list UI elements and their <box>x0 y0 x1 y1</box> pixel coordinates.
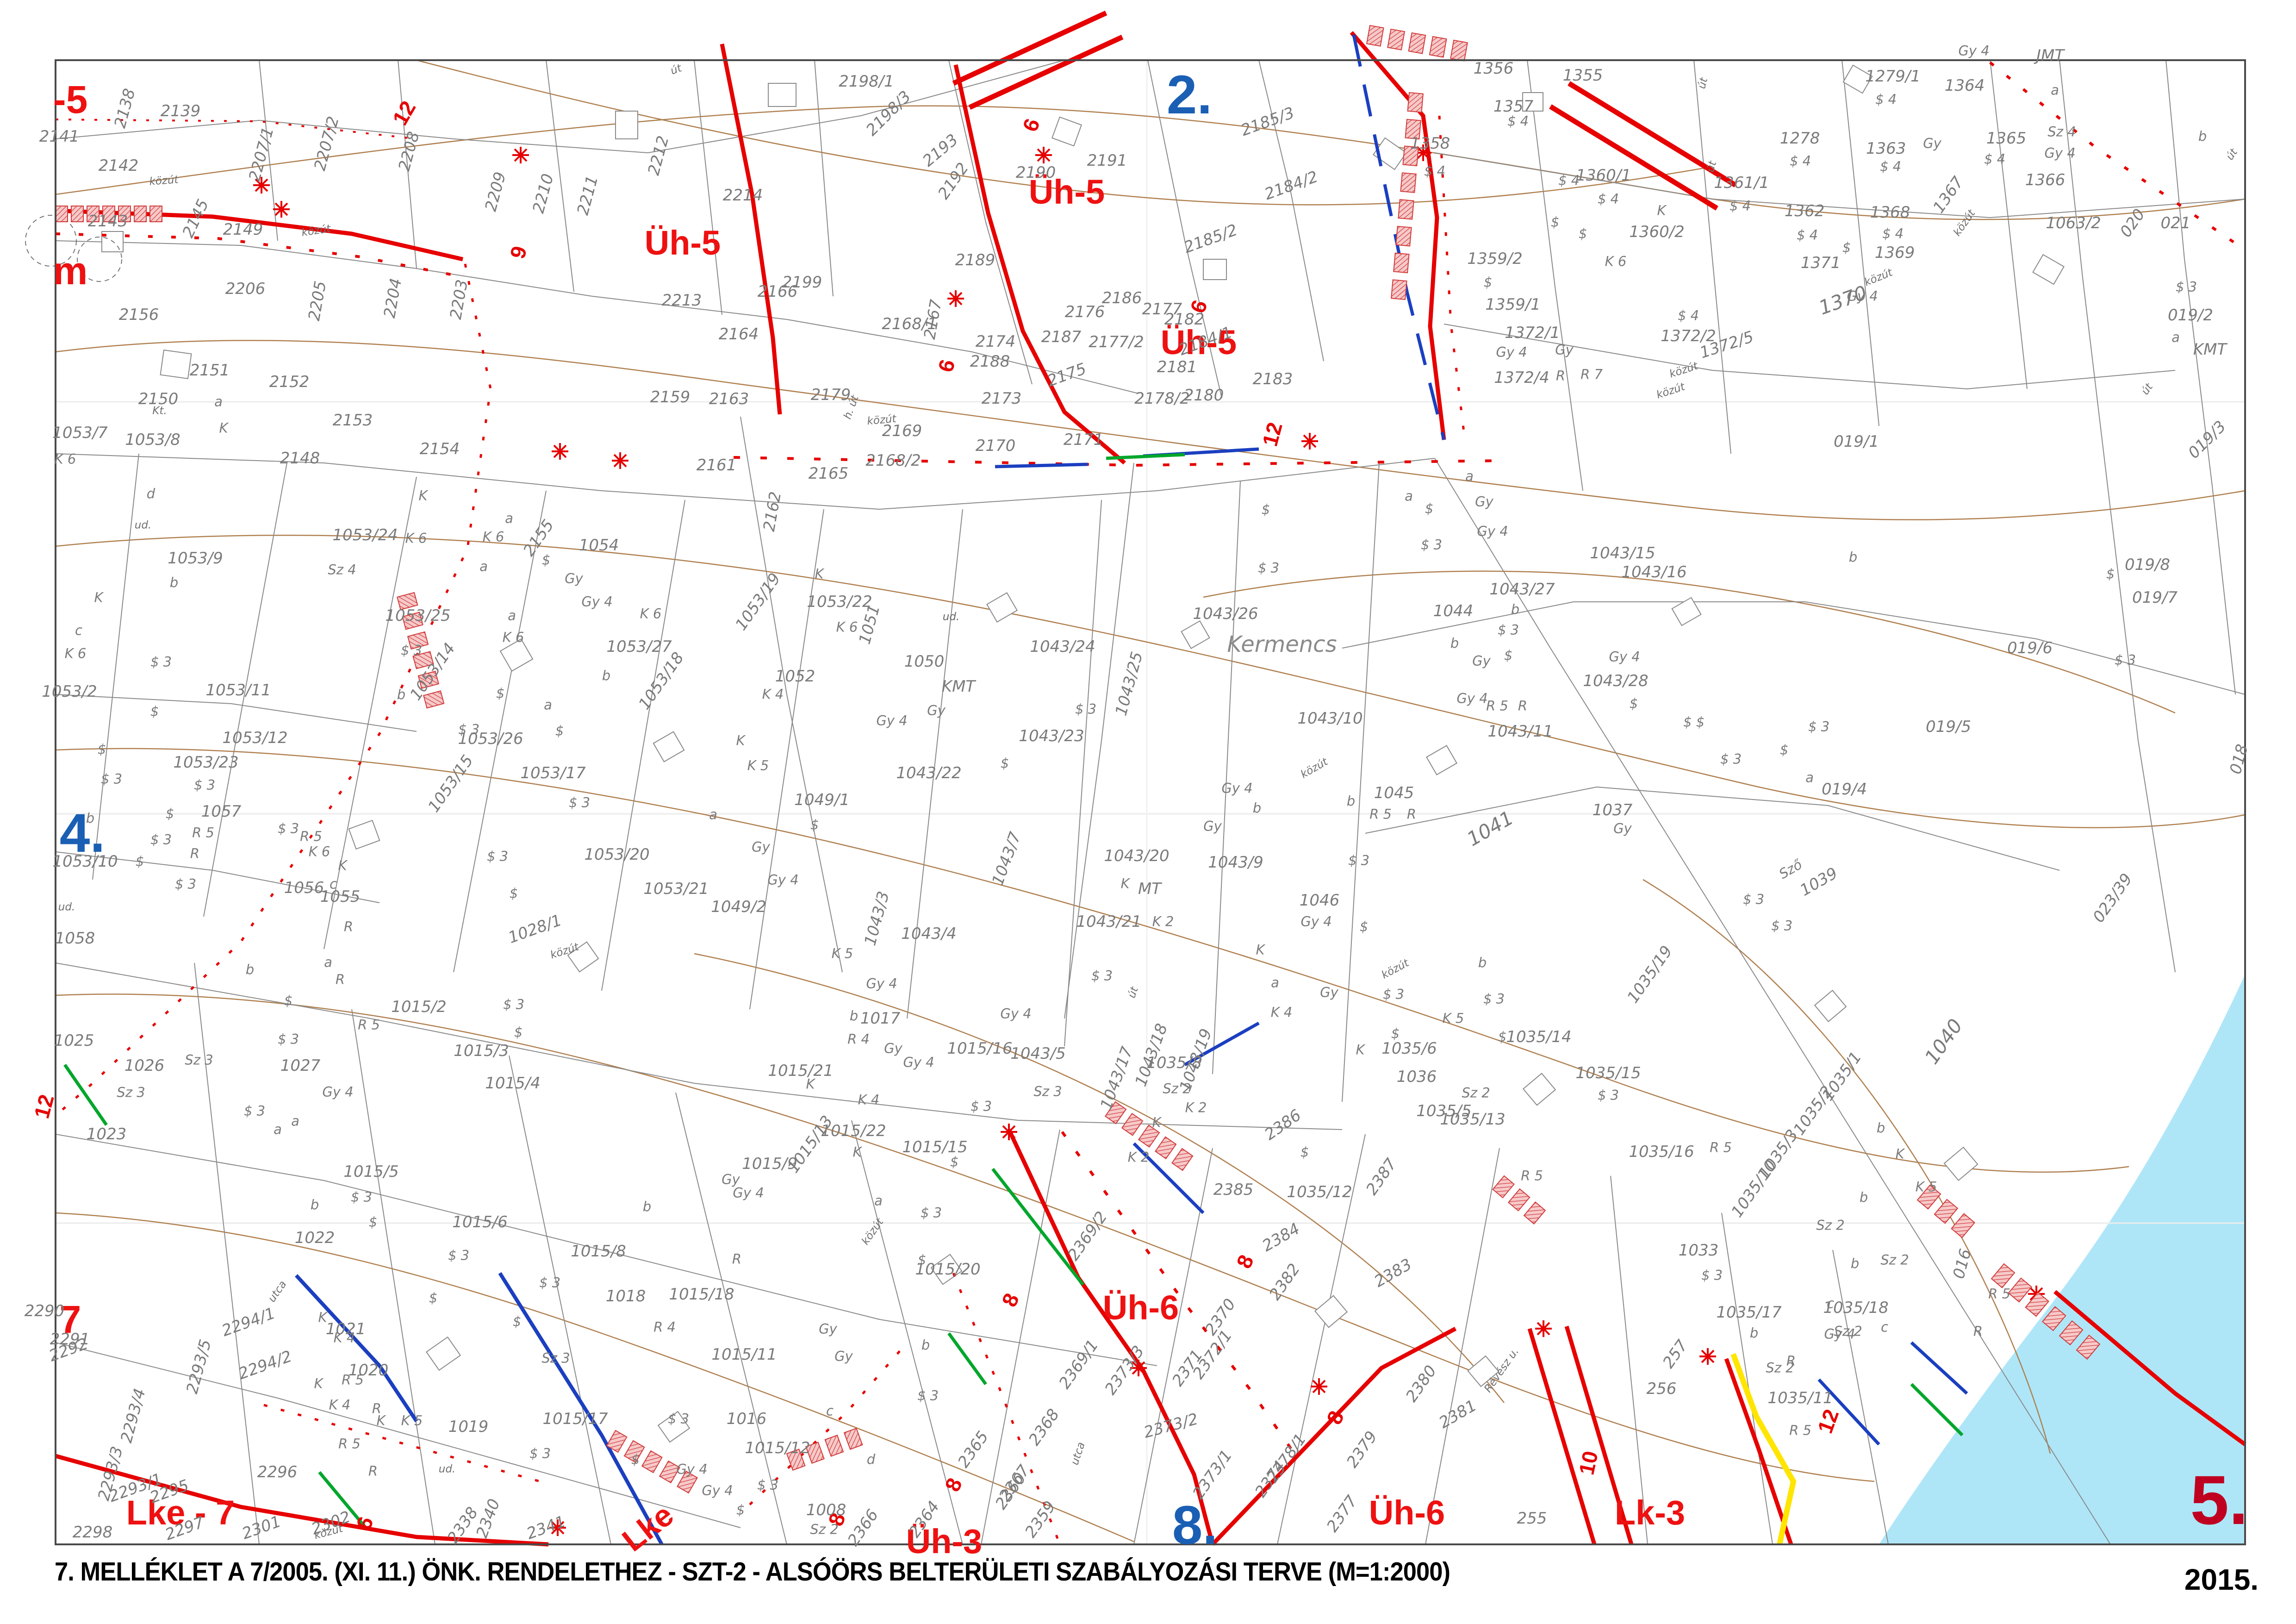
landuse-code: K <box>736 734 745 748</box>
landuse-code: $ <box>1300 1146 1309 1159</box>
parcel-number: 1053/26 <box>458 731 523 747</box>
landuse-code: $ <box>1360 920 1368 934</box>
landuse-code: Gy 4 <box>1609 650 1640 664</box>
landuse-code: $ 3 <box>917 1389 939 1403</box>
road-label: utca <box>267 1279 289 1304</box>
landuse-code: b <box>1347 795 1355 808</box>
landuse-code: $ <box>1262 503 1270 517</box>
parcel-number: 1028/1 <box>506 912 564 946</box>
parcel-number: 2181 <box>1157 359 1197 375</box>
landuse-code: K 5 <box>832 947 853 961</box>
landuse-code: $ <box>1425 502 1433 516</box>
landuse-code: K <box>1895 1148 1904 1161</box>
parcel-number: 2209 <box>483 170 508 213</box>
parcel-number: 2366 <box>845 1507 881 1549</box>
parcel-number: 2170 <box>976 438 1016 454</box>
landuse-code: Gy <box>1472 655 1491 668</box>
zone-label: Üh-6 <box>1103 1291 1179 1325</box>
landuse-code: b <box>1478 956 1487 970</box>
parcel-number: 1360/2 <box>1629 224 1685 240</box>
map-sheet: 2.4.8.5.2015.Üh-5Üh-5Üh-5Üh-6Üh-6Üh-3Lke… <box>0 0 2296 1624</box>
landuse-code: a <box>2051 84 2059 97</box>
parcel-number: 1015/17 <box>542 1411 608 1427</box>
parcel-number: 2138 <box>112 87 137 130</box>
parcel-number: 1053/10 <box>52 854 118 869</box>
dimension-label: 12 <box>31 1092 57 1120</box>
landuse-code: R 5 <box>342 1374 364 1387</box>
road-label: ud. <box>135 520 152 531</box>
zone-label: Lk-3 <box>1615 1496 1685 1530</box>
parcel-number: 2183 <box>1253 371 1293 387</box>
parcel-number: 2190 <box>1016 165 1056 181</box>
landuse-code: $ 3 <box>971 1100 992 1113</box>
parcel-number: 019/6 <box>2007 640 2053 656</box>
parcel-number: 1035/19 <box>1625 943 1675 1006</box>
dimension-label: 8 <box>941 1475 966 1495</box>
parcel-number: 1015/16 <box>947 1041 1012 1056</box>
parcel-number: 256 <box>1647 1381 1677 1397</box>
landuse-code: $ <box>150 705 159 718</box>
parcel-number: 021 <box>2161 215 2191 231</box>
dimension-label: 12 <box>1814 1406 1842 1436</box>
landuse-code: $ <box>631 1453 640 1467</box>
parcel-number: 2152 <box>269 374 310 390</box>
landuse-code: K 6 <box>640 607 662 621</box>
landuse-code: $ 3 <box>2176 281 2197 294</box>
parcel-number: 1371 <box>1801 255 1841 271</box>
parcel-number: 1037 <box>1593 802 1633 818</box>
road-label: út <box>1705 160 1718 174</box>
parcel-number: 1035/16 <box>1629 1144 1694 1160</box>
landuse-code: $ <box>136 855 144 868</box>
parcel-number: 1045 <box>1374 785 1414 801</box>
sheet-number: 8. <box>1172 1498 1218 1553</box>
landuse-code: b <box>602 669 610 683</box>
landuse-code: $ 4 <box>1882 227 1904 241</box>
parcel-number: 1015/21 <box>768 1063 833 1079</box>
parcel-number: 1053/7 <box>52 425 108 441</box>
parcel-number: 2166 <box>758 284 798 300</box>
landuse-code: a <box>324 956 332 969</box>
landuse-code: b <box>1511 603 1519 617</box>
landuse-code: K <box>418 489 427 503</box>
landuse-code: $ <box>513 1315 521 1329</box>
landuse-code: a <box>709 808 717 822</box>
landuse-code: $ 3 <box>921 1206 942 1220</box>
parcel-number: 1053/9 <box>168 550 223 566</box>
landuse-code: $ <box>166 807 174 821</box>
parcel-number: 1043/3 <box>862 890 892 947</box>
parcel-number: 2171 <box>1064 432 1104 448</box>
landuse-code: K 6 <box>483 531 504 544</box>
landuse-code: K <box>852 1146 861 1159</box>
parcel-number: 2188 <box>970 354 1010 369</box>
parcel-number: 2369/2 <box>1065 1209 1110 1263</box>
parcel-number: 020 <box>2117 206 2147 240</box>
parcel-number: 1365 <box>1986 131 2027 146</box>
parcel-number: 2384 <box>1260 1221 1302 1255</box>
landuse-code: Gy <box>884 1042 902 1056</box>
landuse-code: K <box>219 422 228 435</box>
year-label: 2015. <box>2184 1565 2259 1594</box>
landuse-code: Gy <box>1555 344 1574 357</box>
parcel-number: 1040 <box>1922 1016 1966 1068</box>
parcel-number: 2205 <box>306 280 329 322</box>
parcel-number: 1035/14 <box>1506 1029 1571 1045</box>
landuse-code: $ <box>1504 649 1512 662</box>
dimension-label: 8 <box>1323 1408 1348 1428</box>
parcel-number: 1035/10 <box>1729 1157 1780 1220</box>
parcel-number: 1372/4 <box>1494 370 1549 386</box>
landuse-code: $ 3 <box>1421 538 1442 552</box>
landuse-code: $ 3 <box>1348 854 1369 868</box>
landuse-code: Gy 4 <box>866 977 897 991</box>
landuse-code: $ <box>1498 1031 1506 1044</box>
parcel-number: 1026 <box>124 1058 165 1074</box>
parcel-number: 1035/17 <box>1716 1305 1781 1320</box>
landuse-code: K 4 <box>329 1399 351 1412</box>
parcel-number: 2293/5 <box>184 1338 214 1395</box>
landuse-code: $ 3 <box>278 1033 299 1046</box>
parcel-number: 1043/26 <box>1193 606 1258 622</box>
parcel-number: 1361/1 <box>1714 175 1769 191</box>
landuse-code: $ <box>284 994 292 1008</box>
road-label: ud. <box>943 612 960 623</box>
parcel-number: 1035/6 <box>1381 1041 1437 1056</box>
landuse-code: Gy 4 <box>676 1463 707 1476</box>
landuse-code: $ <box>555 725 564 738</box>
landuse-code: b <box>850 1010 858 1023</box>
parcel-number: 2191 <box>1087 153 1127 169</box>
landuse-code: R 5 <box>1521 1169 1543 1183</box>
zone-label-clipped: -5 <box>53 80 88 119</box>
parcel-number: 2385 <box>1213 1182 1254 1198</box>
landuse-code: $ <box>369 1216 377 1229</box>
landuse-code: K 5 <box>1916 1181 1937 1194</box>
landuse-code: $ 3 <box>2115 654 2136 667</box>
landuse-code: $ <box>950 1156 958 1169</box>
landuse-code: Gy <box>1613 822 1632 836</box>
parcel-number: 1053/15 <box>426 752 476 815</box>
road-label: út <box>1126 986 1140 999</box>
landuse-code: a <box>1405 490 1413 503</box>
parcel-number: 2380 <box>1403 1363 1439 1405</box>
parcel-number: KMT <box>942 679 975 694</box>
landuse-code: Gy <box>1475 495 1493 509</box>
parcel-number: 1053/19 <box>733 570 784 633</box>
landuse-code: K <box>1356 1043 1364 1057</box>
parcel-number: 2373/3 <box>1102 1343 1147 1397</box>
parcel-number: 1053/18 <box>636 650 687 712</box>
dimension-label: 9 <box>506 244 530 261</box>
landuse-code: Sz 4 <box>328 563 356 577</box>
parcel-number: 2294/1 <box>220 1305 277 1339</box>
parcel-number: 2139 <box>161 103 201 119</box>
landuse-code: R <box>344 920 353 934</box>
dimension-label: 12 <box>1259 420 1286 448</box>
landuse-code: $ 4 <box>1875 93 1897 106</box>
parcel-number: 2167 <box>922 298 945 340</box>
landuse-code: Gy 4 <box>322 1086 353 1099</box>
parcel-number: 2173 <box>982 391 1022 406</box>
landuse-code: K 6 <box>1605 255 1627 269</box>
parcel-number: 1364 <box>1945 78 1985 94</box>
road-label: közút <box>1380 958 1411 981</box>
parcel-number: 2161 <box>697 457 737 473</box>
road-label: közút <box>1655 381 1686 400</box>
parcel-number: 1015/6 <box>452 1214 508 1230</box>
road-label: Kt. <box>152 406 167 417</box>
parcel-number: 1367 <box>1930 174 1966 216</box>
landuse-code: Gy 4 <box>1958 44 1989 58</box>
landuse-code: Sz 2 <box>1163 1082 1191 1096</box>
landuse-code: R <box>1973 1325 1983 1338</box>
parcel-number: 1279/1 <box>1865 69 1921 84</box>
parcel-number: 2214 <box>723 187 763 203</box>
zone-label-clipped: m <box>53 251 88 290</box>
landuse-code: K <box>314 1377 323 1391</box>
landuse-code: Gy 4 <box>767 874 798 887</box>
parcel-number: 2143 <box>88 213 128 229</box>
sheet-number: 2. <box>1167 68 1212 122</box>
landuse-code: Sző <box>1777 858 1804 881</box>
landuse-code: $ 3 <box>150 656 172 669</box>
parcel-number: 2187 <box>1041 329 1082 345</box>
parcel-number: 1356 <box>1474 61 1514 76</box>
parcel-number: 1278 <box>1780 131 1820 146</box>
parcel-number: 255 <box>1517 1511 1547 1526</box>
landuse-code: b <box>921 1339 930 1352</box>
parcel-number: 1008 <box>806 1502 846 1518</box>
landuse-code: K 2 <box>1185 1101 1207 1115</box>
parcel-number: 1035/8 <box>1146 1055 1202 1071</box>
landuse-code: $ 4 <box>1507 115 1529 128</box>
parcel-number: 2149 <box>223 222 263 237</box>
landuse-code: $ 3 <box>401 644 422 657</box>
landuse-code: $ <box>98 743 106 756</box>
landuse-code: b <box>397 688 405 702</box>
landuse-code: d <box>867 1453 875 1467</box>
landuse-code: $ 4 <box>1797 229 1818 242</box>
road-label: közút <box>867 414 897 427</box>
parcel-number: 2185/2 <box>1182 222 1239 256</box>
parcel-number: 1049/2 <box>711 899 766 915</box>
landuse-code: $ 4 <box>1598 193 1619 206</box>
landuse-code: $ <box>542 554 550 567</box>
landuse-code: $ 3 <box>1383 988 1404 1001</box>
parcel-number: 1041 <box>1464 808 1517 849</box>
parcel-number: 1043/20 <box>1104 848 1169 864</box>
road-label: út <box>2140 382 2155 397</box>
landuse-code: b <box>1253 802 1261 815</box>
parcel-number: 1035/2 <box>1791 1083 1836 1137</box>
road-label: közút <box>1952 208 1977 238</box>
parcel-number: 2341 <box>525 1513 568 1542</box>
landuse-code: K <box>806 1078 815 1091</box>
parcel-number: 1053/23 <box>173 755 238 770</box>
road-label: út <box>669 63 683 77</box>
landuse-code: Gy 4 <box>1477 525 1508 538</box>
landuse-code: $ 4 <box>1730 200 1751 213</box>
parcel-number: 2198/1 <box>839 74 894 89</box>
parcel-number: 2293/4 <box>118 1387 148 1444</box>
landuse-code: b <box>170 576 178 590</box>
parcel-number: 2159 <box>650 389 691 405</box>
landuse-code: Sz 3 <box>541 1352 570 1365</box>
landuse-code: $ 4 <box>1880 160 1901 174</box>
parcel-number: 1015/18 <box>669 1287 734 1302</box>
landuse-code: $ 3 <box>539 1276 560 1290</box>
parcel-number: 1035/11 <box>1767 1390 1833 1406</box>
parcel-number: MT <box>1138 881 1161 897</box>
landuse-code: b <box>86 812 94 825</box>
parcel-number: 1043/15 <box>1590 545 1655 561</box>
landuse-code: d <box>147 487 155 501</box>
landuse-code: K <box>94 591 103 605</box>
parcel-number: 1043/4 <box>901 926 957 942</box>
landuse-code: $ 3 <box>101 773 122 786</box>
landuse-code: $ 3 <box>569 796 590 810</box>
parcel-number: 1035/18 <box>1823 1300 1888 1316</box>
parcel-number: 1043/10 <box>1297 711 1363 726</box>
landuse-code: $ <box>1780 743 1788 757</box>
landuse-code: $ 3 <box>150 833 172 847</box>
parcel-number: 2296 <box>257 1464 298 1480</box>
landuse-code: c <box>1881 1321 1888 1334</box>
parcel-number: 1015/12 <box>745 1440 810 1456</box>
landuse-code: Gy <box>722 1173 740 1187</box>
parcel-number: JMT <box>2036 48 2064 63</box>
landuse-code: $ 3 <box>1743 893 1764 906</box>
parcel-number: 2210 <box>530 172 556 215</box>
landuse-code: R <box>1786 1355 1796 1368</box>
landuse-code: Sz 2 <box>1880 1254 1909 1267</box>
landuse-code: $ 3 <box>1598 1089 1619 1102</box>
landuse-code: R 5 <box>1710 1141 1732 1155</box>
landuse-code: $ <box>1579 227 1587 241</box>
parcel-number: 2368 <box>1026 1406 1062 1448</box>
landuse-code: $ 3 <box>529 1447 551 1461</box>
parcel-number: 1043/23 <box>1019 728 1084 744</box>
parcel-number: 2151 <box>190 362 230 378</box>
parcel-number: 2186 <box>1102 290 1142 306</box>
parcel-number: 2145 <box>180 197 211 240</box>
landuse-code: K 4 <box>334 1331 355 1345</box>
landuse-code: b <box>1849 551 1857 564</box>
landuse-code: K 4 <box>1271 1006 1293 1019</box>
dimension-label: 6 <box>1019 116 1043 134</box>
landuse-code: b <box>311 1199 319 1212</box>
parcel-number: 2154 <box>420 441 460 457</box>
parcel-number: 2207/2 <box>312 115 342 172</box>
parcel-number: 2176 <box>1065 304 1105 320</box>
landuse-code: K 2 <box>1128 1151 1150 1164</box>
landuse-code: Gy <box>1203 820 1222 833</box>
parcel-number: 2379 <box>1344 1429 1380 1470</box>
landuse-code: K 6 <box>65 647 87 661</box>
parcel-number: 1369 <box>1875 245 1915 261</box>
landuse-code: $ <box>429 1292 437 1305</box>
parcel-number: 019/1 <box>1834 434 1879 450</box>
landuse-code: Gy <box>1923 137 1941 150</box>
parcel-number: 1033 <box>1679 1243 1719 1258</box>
parcel-number: 2156 <box>119 307 159 323</box>
parcel-number: 2192 <box>935 160 971 202</box>
landuse-code: $ 3 <box>1091 969 1113 983</box>
landuse-code: $ 3 <box>668 1412 689 1426</box>
zone-label: Üh-6 <box>1369 1496 1445 1530</box>
parcel-number: 1015/22 <box>821 1123 886 1139</box>
parcel-number: 2141 <box>39 129 80 144</box>
landuse-code: $ <box>1842 241 1851 255</box>
landuse-code: b <box>2198 130 2207 144</box>
parcel-number: 1057 <box>201 804 242 819</box>
map-labels-layer: 2.4.8.5.2015.Üh-5Üh-5Üh-5Üh-6Üh-6Üh-3Lke… <box>0 0 2296 1624</box>
landuse-code: $ 4 <box>1984 153 2005 166</box>
landuse-code: Sz 3 <box>117 1086 145 1099</box>
parcel-number: 1357 <box>1493 99 1534 114</box>
landuse-code: K <box>338 859 347 873</box>
parcel-number: 2184/2 <box>1263 169 1320 203</box>
place-name: Kermencs <box>1227 633 1337 656</box>
parcel-number: 2174 <box>976 334 1016 350</box>
landuse-code: $ 3 <box>175 878 196 891</box>
landuse-code: b <box>1750 1327 1758 1340</box>
sheet-title: 7. MELLÉKLET A 7/2005. (XI. 11.) ÖNK. RE… <box>55 1556 1928 1587</box>
parcel-number: 019/8 <box>2125 557 2170 573</box>
parcel-number: 2203 <box>448 278 471 320</box>
parcel-number: 2142 <box>99 158 139 174</box>
parcel-number: 2211 <box>575 174 600 217</box>
parcel-number: 1035/5 <box>1416 1103 1472 1119</box>
landuse-code: R 5 <box>1789 1424 1811 1437</box>
landuse-code: $ 3 <box>1720 753 1742 766</box>
landuse-code: a <box>2172 331 2180 344</box>
parcel-number: 2365 <box>955 1429 991 1470</box>
landuse-code: R <box>732 1253 741 1266</box>
landuse-code: R 7 <box>1580 368 1603 381</box>
landuse-code: Gy <box>752 841 770 854</box>
dimension-label: 6 <box>353 1514 377 1532</box>
parcel-number: 1035/12 <box>1287 1184 1352 1200</box>
landuse-code: a <box>544 699 552 712</box>
road-label: utca <box>1070 1441 1087 1467</box>
landuse-code: Sz 2 <box>1462 1087 1490 1100</box>
parcel-number: 2182 <box>1164 312 1205 327</box>
parcel-number: KMT <box>2193 342 2227 357</box>
road-label: út <box>2225 147 2240 162</box>
landuse-code: Gy 4 <box>1824 1328 1855 1341</box>
landuse-code: a <box>214 395 223 409</box>
landuse-code: $ 3 <box>278 822 299 836</box>
parcel-number: 1043/16 <box>1621 564 1686 580</box>
parcel-number: 1053/22 <box>807 594 872 610</box>
parcel-number: 2179 <box>811 387 851 403</box>
parcel-number: 1372/1 <box>1505 325 1560 341</box>
parcel-number: 2180 <box>1184 387 1224 403</box>
landuse-code: Gy 4 <box>1496 346 1527 359</box>
landuse-code: b <box>1877 1122 1885 1135</box>
parcel-number: 1360/1 <box>1576 168 1631 183</box>
parcel-number: 1053/27 <box>606 639 672 655</box>
road-label: közút <box>149 175 179 187</box>
landuse-code: $ <box>1551 216 1559 229</box>
dimension-label: 10 <box>1575 1449 1601 1477</box>
parcel-number: 2206 <box>225 281 266 297</box>
parcel-number: 1043/28 <box>1583 673 1648 689</box>
landuse-code: K 6 <box>309 845 330 859</box>
parcel-number: 019/2 <box>2168 307 2213 323</box>
